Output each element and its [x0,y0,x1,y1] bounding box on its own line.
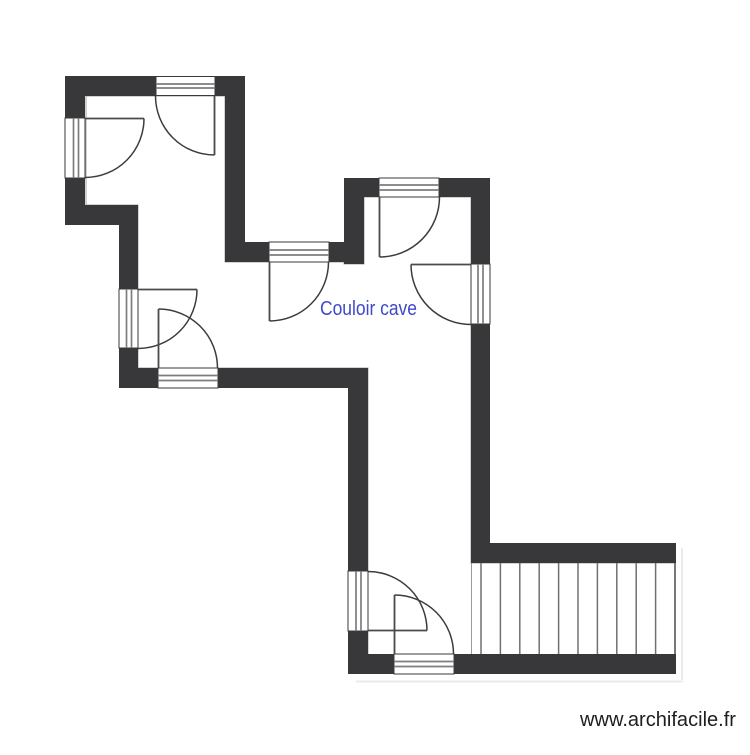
svg-text:www.archifacile.fr: www.archifacile.fr [579,709,736,731]
svg-text:Couloir cave: Couloir cave [320,298,417,320]
